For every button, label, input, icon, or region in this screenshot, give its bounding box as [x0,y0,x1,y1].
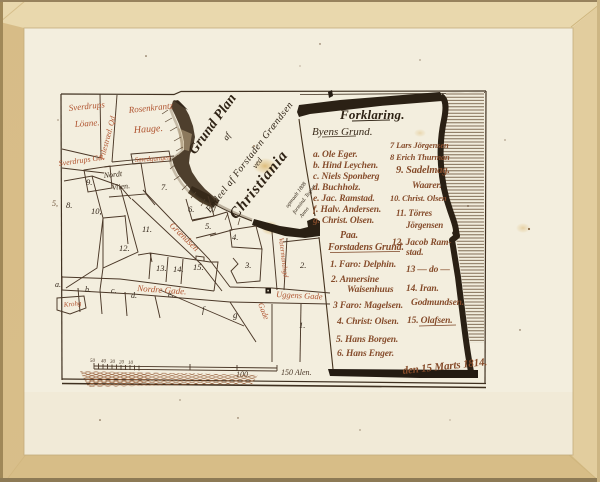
svg-text:Waarer.: Waarer. [412,181,442,191]
svg-text:stad.: stad. [405,248,423,258]
svg-text:6. Hans Enger.: 6. Hans Enger. [337,349,394,359]
svg-text:d.: d. [131,291,137,300]
svg-text:10,: 10, [91,206,102,216]
svg-text:11. Törres: 11. Törres [396,208,433,218]
svg-text:b.: b. [85,285,91,294]
svg-text:Godmundsen.: Godmundsen. [411,298,464,308]
svg-text:a. Ole Eger.: a. Ole Eger. [313,150,358,160]
svg-text:Viien.: Viien. [111,181,130,192]
svg-text:2.: 2. [300,260,306,270]
svg-text:g: g [233,310,238,320]
svg-text:Forklaring.: Forklaring. [339,107,405,122]
svg-text:Waisenhuus: Waisenhuus [347,285,394,295]
svg-text:e.: e. [168,290,174,299]
svg-text:20: 20 [119,361,125,366]
svg-text:d. Buchholz.: d. Buchholz. [313,183,361,193]
svg-text:6.: 6. [188,204,194,214]
svg-text:e. Jac. Ramstad.: e. Jac. Ramstad. [313,194,375,204]
svg-text:f. Halv. Andersen.: f. Halv. Andersen. [313,205,381,215]
svg-text:7.: 7. [161,182,167,192]
svg-text:30: 30 [110,360,116,365]
svg-text:10: 10 [128,361,134,366]
svg-text:3.: 3. [244,260,251,270]
svg-text:Hauge.: Hauge. [132,123,163,136]
svg-text:8.: 8. [66,200,72,210]
svg-text:12. Jacob Ram-: 12. Jacob Ram- [392,238,451,248]
svg-text:8 Erich Thurman: 8 Erich Thurman [390,152,450,162]
svg-text:14. Iran.: 14. Iran. [406,284,439,294]
svg-text:1. Faro: Delphin.: 1. Faro: Delphin. [330,260,396,270]
svg-text:4.: 4. [232,232,238,242]
svg-text:7 Lars Jörgensen: 7 Lars Jörgensen [390,140,449,150]
svg-text:Löane.: Löane. [73,117,99,129]
svg-text:g. Christ. Olsen.: g. Christ. Olsen. [312,216,374,226]
svg-text:13.: 13. [156,263,167,273]
svg-text:13 — do —: 13 — do — [406,265,450,275]
svg-text:1.: 1. [299,320,305,330]
svg-text:40: 40 [101,360,107,365]
svg-text:Jörgensen: Jörgensen [405,220,443,230]
svg-text:c. Niels Sponberg: c. Niels Sponberg [313,172,380,182]
svg-text:15.: 15. [193,262,204,272]
svg-text:150 Alen.: 150 Alen. [281,368,312,377]
svg-text:10. Christ. Olsen: 10. Christ. Olsen [390,193,447,203]
svg-text:12.: 12. [119,243,130,253]
svg-text:9.: 9. [86,177,92,187]
svg-text:15. Olafsen.: 15. Olafsen. [407,316,452,326]
svg-text:5. Hans Borgen.: 5. Hans Borgen. [336,335,398,345]
svg-text:11.: 11. [142,224,152,234]
svg-text:9. Sadelmag.: 9. Sadelmag. [396,165,450,176]
svg-text:a.: a. [55,280,61,289]
svg-text:b. Hind Leychen.: b. Hind Leychen. [313,161,378,171]
svg-text:c.: c. [111,286,117,295]
svg-text:3 Faro: Magelsen.: 3 Faro: Magelsen. [332,301,403,311]
svg-text:2. Annersine: 2. Annersine [330,275,380,285]
svg-text:4. Christ: Olsen.: 4. Christ: Olsen. [336,317,399,327]
svg-text:5,: 5, [52,199,58,208]
svg-text:Paa.: Paa. [340,230,358,241]
svg-text:5.: 5. [205,221,211,231]
svg-text:50: 50 [90,359,96,364]
svg-text:14.: 14. [173,264,184,274]
